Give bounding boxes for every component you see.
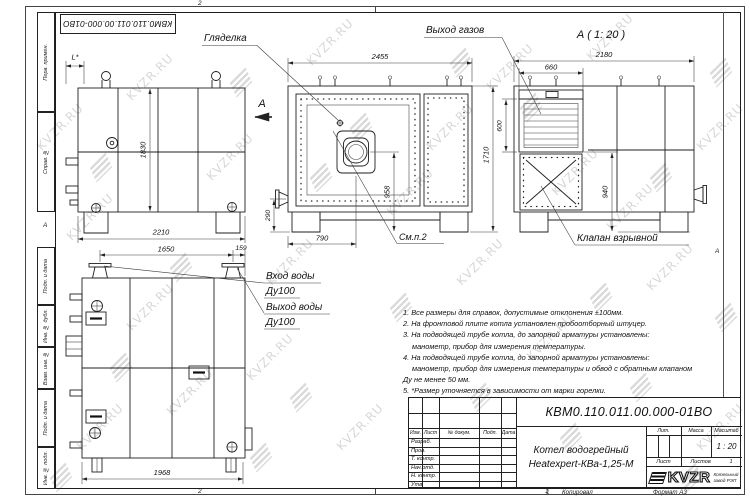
title-block: Изм. Лист № докум. Подп. Дата Разраб. Пр… — [408, 397, 741, 488]
lifting-hooks-right — [528, 76, 660, 86]
callout-water-outlet: Выход воды — [266, 302, 323, 313]
view-rear: 1650 159 1968 Вход воды Ду100 Выход воды… — [66, 245, 330, 485]
tb-col-data: Дата — [501, 428, 516, 438]
dim-958: 958 — [383, 185, 392, 198]
tb-row-utv: Утв. — [409, 481, 439, 490]
callout-water-inlet-dn: Ду100 — [265, 286, 295, 297]
tb-product-name: Котел водогрейный Heatexpert-КВа-1,25-М — [516, 426, 646, 489]
kvzr-wave-icon — [648, 472, 667, 484]
dim-660: 660 — [545, 63, 558, 72]
tb-scale-label: Масштаб — [711, 426, 742, 435]
lifting-hooks — [318, 76, 462, 86]
dim-2180: 2180 — [595, 50, 614, 59]
jack-symbols — [92, 203, 237, 213]
note-line: манометр, прибор для измерения температу… — [403, 363, 728, 374]
footer-copied: Копировал — [562, 489, 593, 496]
callout-gas-outlet: Выход газов — [426, 25, 484, 36]
dim-940: 940 — [601, 185, 610, 198]
dim-600: 600 — [497, 120, 504, 132]
tb-col-izm: Изм. — [409, 428, 422, 438]
tb-scale-value: 1 : 20 — [711, 435, 742, 457]
tb-lit-label: Лит. — [646, 426, 681, 435]
footer-sheet-num: 1 — [546, 489, 549, 496]
callout-water-outlet-dn: Ду100 — [265, 317, 295, 328]
note-line: 3. На подводящей трубе котла, до запорно… — [403, 329, 728, 340]
dim-1968: 1968 — [154, 468, 172, 477]
dim-2455: 2455 — [371, 52, 390, 61]
drawing-sheet: KVZR.RUKVZR.RUKVZR.RUKVZR.RUKVZR.RUKVZR.… — [0, 0, 750, 500]
tb-row-nkontr: Н. контр. — [409, 472, 439, 481]
callout-explosion-valve: Клапан взрывной — [577, 233, 658, 244]
company-name: Котельный завод РЭП — [713, 472, 738, 483]
dim-l-star: L* — [71, 53, 79, 62]
note-line: манометр, прибор для измерения температу… — [403, 341, 728, 352]
view-front: 2455 958 790 290 1710 Гляделка См.п.2 — [202, 33, 498, 248]
note-line: 2. На фронтовой плите котла установлен п… — [403, 318, 728, 329]
tb-col-ndokum: № докум. — [439, 428, 479, 438]
callout-water-inlet: Вход воды — [266, 271, 315, 282]
tb-doc-number: КВМ0.110.011.00.000-01ВО — [516, 398, 742, 426]
view-left-side: L* 1830 2210 А — [66, 53, 272, 244]
tb-mass-label: Масса — [681, 426, 711, 435]
footer-format: Формат А3 — [653, 489, 687, 496]
tb-row-nachotd: Нач.отд. — [409, 464, 439, 473]
dim-290: 290 — [265, 210, 272, 223]
tb-sheets: Листов 1 — [681, 457, 742, 466]
grille-louvers — [524, 109, 578, 145]
note-line: 4. На подводящей трубе котла, до запорно… — [403, 352, 728, 363]
section-arrow-label: А — [257, 98, 265, 110]
tb-col-list: Лист — [422, 428, 439, 438]
tb-row-prov: Пров. — [409, 447, 439, 456]
dim-1830: 1830 — [139, 141, 148, 159]
tb-sheet-label: Лист — [646, 457, 681, 466]
section-view-title: А ( 1: 20 ) — [576, 29, 626, 41]
note-line: 1. Все размеры для справок, допустимые о… — [403, 307, 728, 318]
dim-159: 159 — [235, 245, 247, 252]
tb-row-razrab: Разраб. — [409, 438, 439, 447]
tb-col-podp: Подп. — [479, 428, 501, 438]
note-line: 5. *Размер уточняется в зависимости от м… — [403, 385, 728, 396]
dim-2210: 2210 — [152, 228, 171, 237]
dim-790: 790 — [316, 234, 329, 243]
tb-row-tkontr: Т. контр. — [409, 455, 439, 464]
dim-1710: 1710 — [482, 146, 491, 164]
technical-notes: 1. Все размеры для справок, допустимые о… — [403, 307, 728, 397]
tb-logo-cell: KVZR Котельный завод РЭП — [646, 466, 742, 489]
kvzr-logo-text: KVZR — [668, 470, 711, 485]
instrument-symbols — [90, 301, 238, 453]
dim-1650: 1650 — [158, 245, 176, 254]
note-line: Ду не менее 50 мм. — [403, 374, 728, 385]
callout-sight-glass: Гляделка — [204, 33, 247, 44]
callout-see-note-2: См.п.2 — [399, 232, 427, 242]
